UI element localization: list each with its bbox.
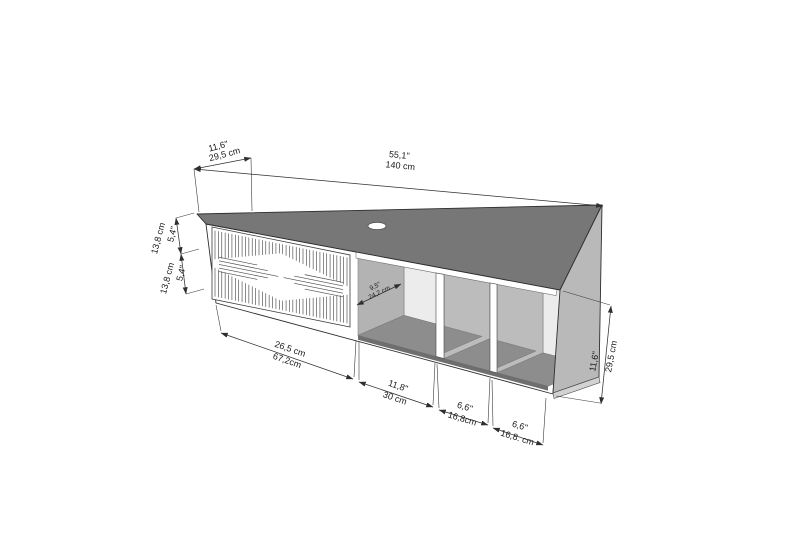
divider2-front-edge <box>490 283 497 373</box>
cable-hole <box>368 222 386 229</box>
dim-label-top-depth: 11,6" 29,5 cm <box>205 136 241 163</box>
divider1-front-edge <box>436 273 444 359</box>
furniture-body <box>197 205 602 399</box>
dim-label-top-width: 55,1" 140 cm <box>385 149 416 172</box>
side-upper-cm: 13,8 cm <box>149 221 167 255</box>
dim-label-bottom-shelf2: 6,6" 16,8cm <box>447 398 482 428</box>
top-width-cm: 140 cm <box>385 159 415 172</box>
height-cm: 29,5 cm <box>603 340 619 373</box>
tv-stand-dimension-diagram: 11,6" 29,5 cm 55,1" 140 cm 13,8 cm 5,4" … <box>0 0 800 533</box>
dim-label-bottom-shelf3: 6,6" 16,8. cm <box>499 416 538 447</box>
side-lower-cm: 13,8 cm <box>158 261 176 295</box>
side-upper-inch: 5,4" <box>165 225 179 243</box>
side-lower-inch: 5,4" <box>174 264 188 282</box>
bottom-shelf2-cm: 16,8cm <box>447 409 478 427</box>
dim-line-top-width <box>194 169 603 206</box>
dim-label-bottom-door: 26,5 cm 67,2cm <box>269 339 306 370</box>
bottom-shelf3-cm: 16,8. cm <box>499 428 535 448</box>
dim-label-bottom-shelf1: 11,8" 30 cm <box>382 377 413 406</box>
